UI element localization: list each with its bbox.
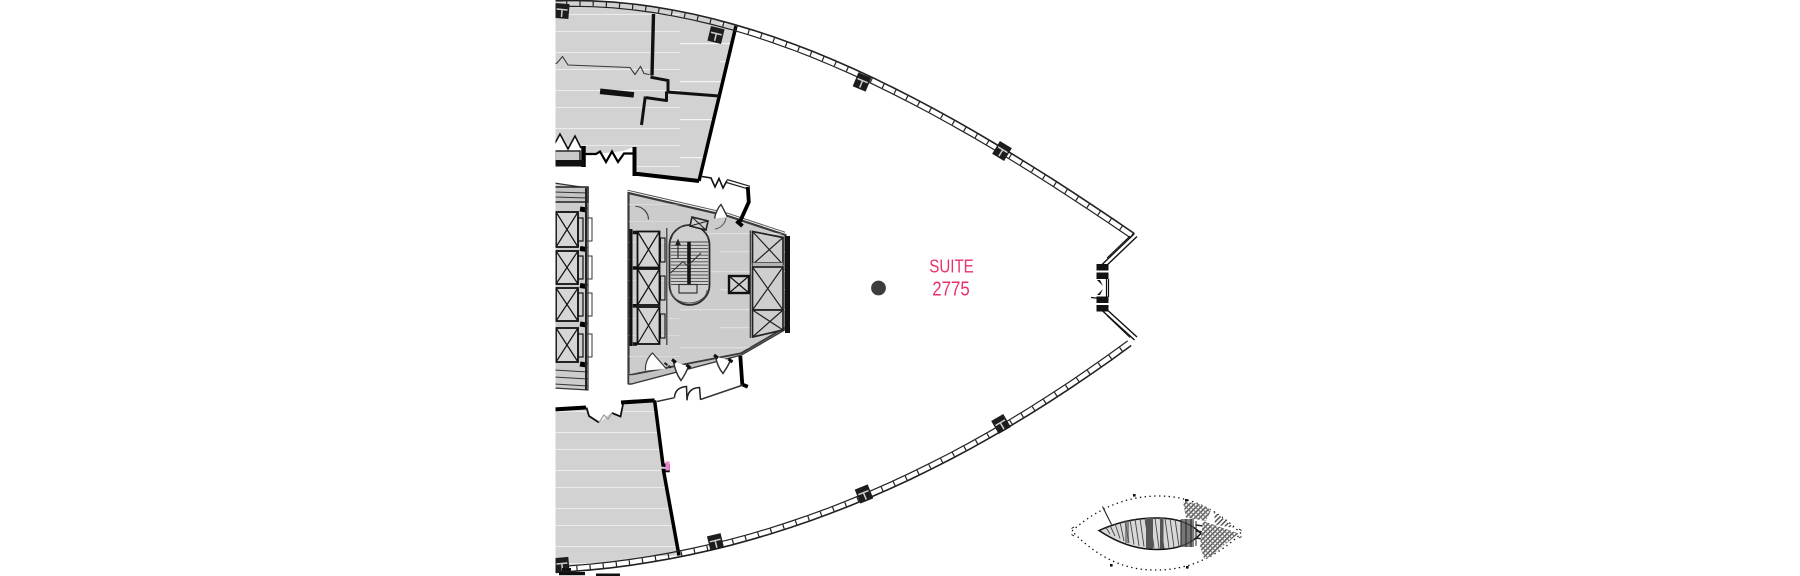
- svg-text:2775: 2775: [932, 279, 970, 301]
- svg-text:SUITE: SUITE: [929, 256, 974, 277]
